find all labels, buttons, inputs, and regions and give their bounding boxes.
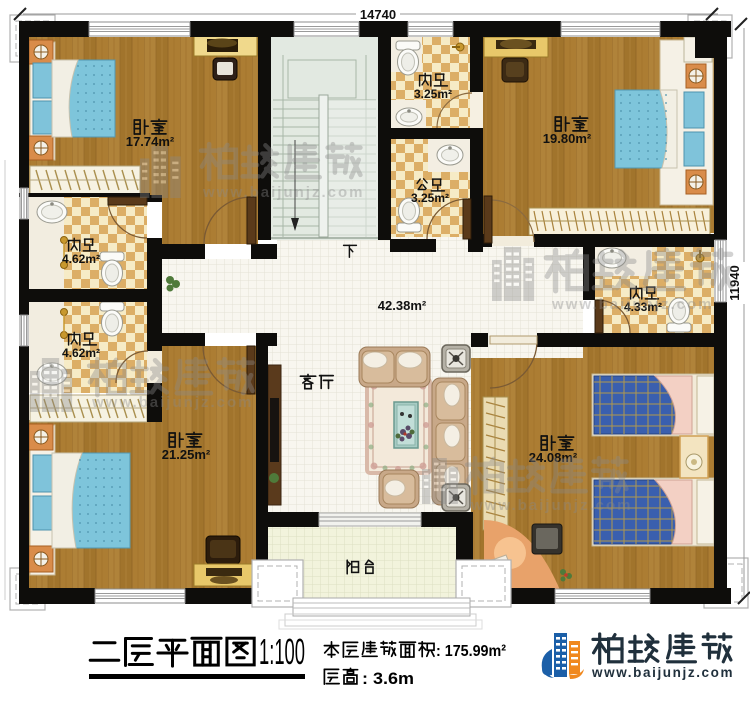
svg-text:www.baijunjz.com: www.baijunjz.com	[470, 497, 632, 514]
svg-text:www.baijunjz.com: www.baijunjz.com	[591, 665, 734, 680]
svg-text:21.25m²: 21.25m²	[162, 447, 211, 462]
svg-text:: 175.99m²: : 175.99m²	[436, 643, 506, 660]
svg-text:: 3.6m: : 3.6m	[362, 669, 414, 688]
svg-text:www.baijunjz.com: www.baijunjz.com	[202, 184, 364, 201]
svg-text:42.38m²: 42.38m²	[378, 298, 427, 313]
svg-text:3.25m²: 3.25m²	[411, 191, 449, 205]
svg-text:1:100: 1:100	[259, 631, 305, 672]
svg-text:3.25m²: 3.25m²	[414, 87, 452, 101]
svg-text:www.baijunjz.com: www.baijunjz.com	[91, 394, 253, 411]
svg-text:4.62m²: 4.62m²	[62, 252, 100, 266]
svg-text:www.baijunjz.com: www.baijunjz.com	[551, 296, 713, 313]
svg-text:4.62m²: 4.62m²	[62, 346, 100, 360]
svg-text:19.80m²: 19.80m²	[543, 131, 592, 146]
svg-text:14740: 14740	[360, 7, 396, 22]
